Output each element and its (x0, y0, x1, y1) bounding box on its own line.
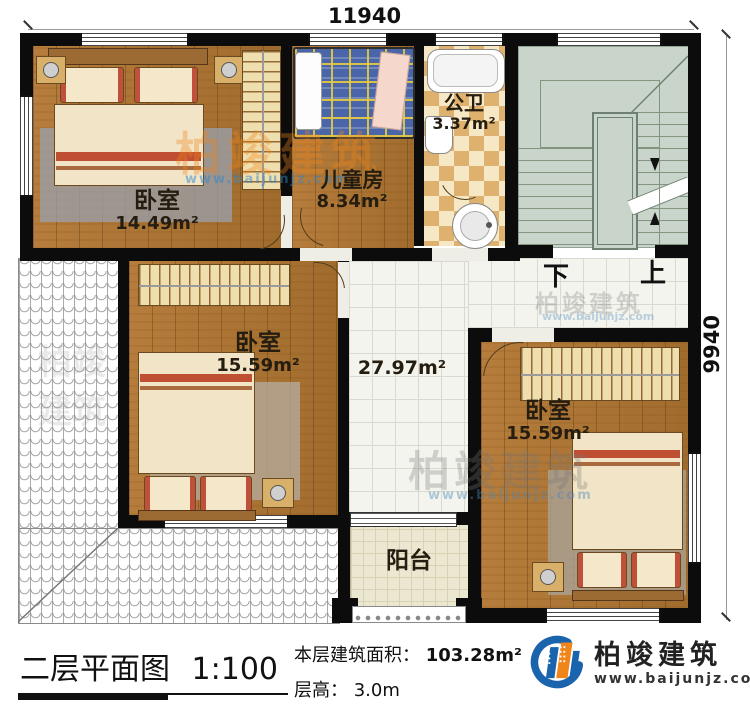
plan-scale: 1:100 (192, 652, 278, 687)
balcony-railing (352, 606, 466, 623)
stairs-up-label: 上 (640, 253, 666, 290)
wardrobe (520, 347, 680, 401)
company-logo-icon (524, 634, 584, 694)
doorway (300, 248, 352, 261)
watermark-url: www.baijunjz.com (428, 488, 593, 503)
dimension-height: 9940 (700, 315, 724, 373)
room-name: 儿童房 (282, 168, 422, 192)
nightstand (214, 56, 244, 84)
stair-guide-line (659, 112, 660, 245)
company-website: www.baijunjz.com (594, 671, 750, 687)
bathtub-inner (433, 54, 498, 87)
room-area: 15.59m² (478, 424, 618, 445)
hall-label: 27.97m² (342, 358, 462, 380)
bedroom2-label: 卧室 15.59m² (188, 330, 328, 377)
sliding-door (350, 512, 457, 527)
watermark-url: www.baijunjz.com (542, 310, 654, 323)
floor-info: 本层建筑面积： 103.28m² 层高： 3.0m (294, 641, 522, 706)
doorway (432, 248, 488, 261)
room-area: 15.59m² (188, 356, 328, 377)
stair-flight-left (518, 148, 592, 246)
dimension-line-right (726, 36, 727, 620)
company-name: 柏竣建筑 (594, 641, 750, 671)
bathroom-label: 公卫 3.37m² (423, 92, 505, 133)
company-logo: 柏竣建筑 www.baijunjz.com (524, 634, 750, 694)
wall-segment (118, 258, 129, 528)
dimension-line-top (28, 29, 694, 30)
room-area: 14.49m² (77, 214, 237, 235)
window (20, 95, 33, 197)
room-area: 3.37m² (423, 115, 505, 133)
window (545, 608, 661, 623)
bedroom3-label: 卧室 15.59m² (478, 398, 618, 445)
floor-height-label: 层高： (294, 680, 348, 701)
stair-stringer (592, 112, 638, 250)
roof-ridge-line (18, 528, 119, 623)
watermark-text: 柏竣建筑 (38, 335, 118, 433)
room-name: 卧室 (188, 330, 328, 356)
sink-drain (486, 222, 492, 228)
nightstand (36, 56, 66, 84)
kids-room-label: 儿童房 8.34m² (282, 168, 422, 213)
nightstand (532, 562, 564, 592)
balcony-label: 阳台 (350, 548, 468, 574)
stair-diagonal (630, 50, 690, 116)
doorway (492, 328, 554, 342)
floor-area-value: 103.28m² (426, 645, 522, 666)
stairs-down-label: 下 (543, 256, 569, 293)
window (80, 33, 189, 46)
wall-segment (414, 45, 424, 246)
room-area: 8.34m² (282, 192, 422, 213)
room-name: 卧室 (478, 398, 618, 424)
window (308, 33, 388, 46)
floor-plan-canvas: 11940 9940 (0, 0, 750, 706)
title-underline-bar (18, 695, 168, 700)
room-name: 卧室 (77, 188, 237, 214)
wardrobe (138, 264, 290, 306)
floor-area-label: 本层建筑面积： (294, 645, 420, 666)
room-name: 公卫 (423, 92, 505, 115)
floor-height-value: 3.0m (354, 680, 400, 701)
dimension-width: 11940 (328, 4, 401, 28)
room-name: 阳台 (350, 548, 468, 574)
window (556, 33, 662, 46)
room-area: 27.97m² (342, 358, 462, 380)
nightstand (262, 478, 294, 508)
plan-title-text: 二层平面图 (20, 652, 170, 687)
window (688, 452, 701, 564)
window (434, 33, 504, 46)
bedroom1-label: 卧室 14.49m² (77, 188, 237, 235)
wall-segment (455, 512, 481, 525)
plan-title: 二层平面图 1:100 (18, 644, 288, 695)
wall-segment (505, 33, 518, 246)
